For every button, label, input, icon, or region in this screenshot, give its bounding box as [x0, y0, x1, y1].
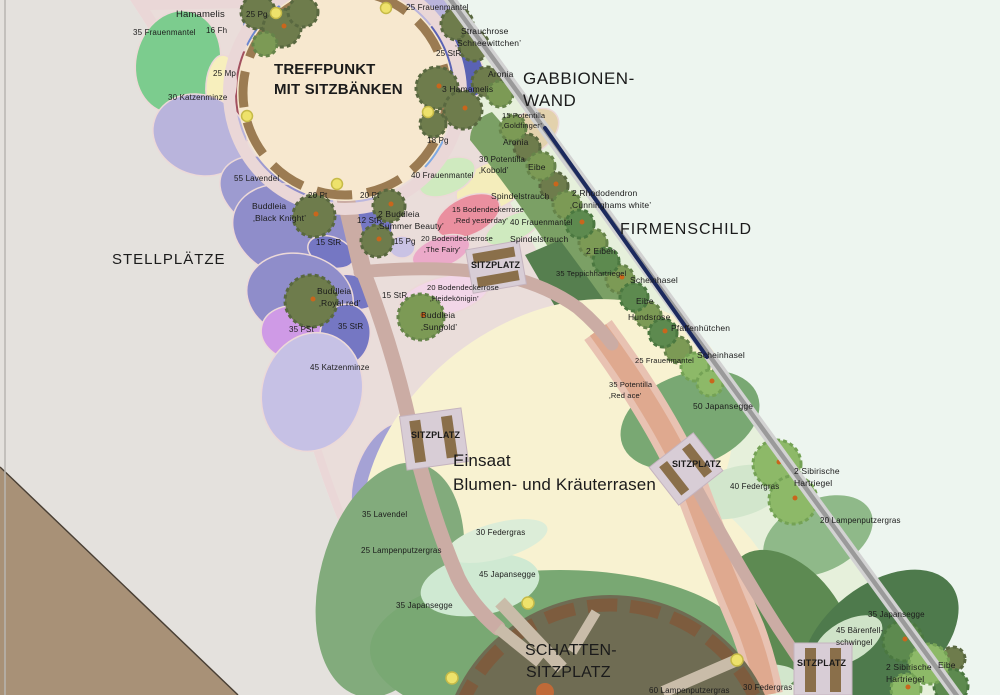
plant-label: 20 Pt [360, 192, 379, 200]
plant-label: 35 Frauenmantel [133, 29, 196, 37]
plant-label: Strauchrose [461, 27, 508, 36]
plant-label: 35 PSt [289, 326, 314, 334]
plant-label: 40 Federgras [730, 483, 779, 491]
plant-label: Eibe [636, 297, 654, 306]
plant-label: Hartriegel [794, 479, 832, 488]
plant-label: 35 Japansegge [396, 602, 453, 610]
plant-label: Eibe [528, 163, 546, 172]
plant-label: 2 Buddleia [378, 210, 420, 219]
plant-label: 35 Potentilla [609, 381, 652, 389]
plan-labels-layer: TREFFPUNKTMIT SITZBÄNKENSTELLPLÄTZEGABBI… [0, 0, 1000, 695]
plant-label: 15 StR [382, 292, 407, 300]
plant-label: ‚Sungold’ [421, 323, 457, 332]
plant-label: 25 Mp [213, 70, 236, 78]
plant-label: 40 Frauenmantel [411, 172, 474, 180]
plant-label: 2 Sibirische [886, 663, 932, 672]
plant-label: 50 Japansegge [693, 402, 753, 411]
plant-label: 30 Federgras [743, 684, 792, 692]
plant-label: 45 Japansegge [479, 571, 536, 579]
plant-label: 45 Katzenminze [310, 364, 369, 372]
plant-label: ‚Summer Beauty’ [377, 222, 444, 231]
plant-label: Hamamelis [176, 10, 225, 20]
plant-label: ‚Schneewittchen’ [455, 39, 521, 48]
plant-label: 20 Bodendeckerrose [421, 235, 493, 243]
area-title-treffpunkt-line2: MIT SITZBÄNKEN [274, 82, 403, 98]
plant-label: ‚The Fairy’ [424, 246, 461, 254]
sitzplatz-1-label: SITZPLATZ [471, 261, 520, 270]
plant-label: Pfaffenhütchen [671, 324, 730, 333]
plant-label: Buddleia [317, 287, 351, 296]
plant-label: 35 StR [338, 323, 363, 331]
plant-label: Buddleia [421, 311, 455, 320]
plant-label: Aronia [488, 70, 513, 79]
plant-label: 15 StR [316, 239, 341, 247]
sitzplatz-4-label: SITZPLATZ [797, 659, 846, 668]
plant-label: ‚Goldfinger’ [502, 122, 542, 130]
plant-label: 3 Hamamelis [442, 85, 493, 94]
plant-label: 30 Potentilla [479, 156, 525, 164]
plant-label: 20 Bodendeckerrose [427, 284, 499, 292]
plant-label: Scheinhasel [630, 276, 678, 285]
plant-label: Scheinhasel [697, 351, 745, 360]
plant-label: 35 Teppichhartriegel [556, 270, 626, 278]
plant-label: ‚Royal red’ [319, 299, 361, 308]
plant-label: 15 Bodendeckerrose [452, 206, 524, 214]
plant-label: 20 Pt [308, 192, 327, 200]
plant-label: 30 Federgras [476, 529, 525, 537]
plant-label: 20 Lampenputzergras [820, 517, 901, 525]
plant-label: Hartriegel [886, 675, 924, 684]
plant-label: schwingel [836, 639, 872, 647]
plant-label: ‚Black Knight’ [253, 214, 306, 223]
area-title-schattensitzplatz-line1: SCHATTEN- [525, 643, 617, 660]
area-title-schattensitzplatz-line2: SITZPLATZ [526, 665, 611, 682]
plant-label: 45 Bärenfell- [836, 627, 883, 635]
plant-label: ‚Cunninghams white’ [570, 201, 651, 210]
area-title-treffpunkt-line1: TREFFPUNKT [274, 62, 376, 78]
plant-label: Eibe [938, 661, 956, 670]
area-title-firmenschild: FIRMENSCHILD [620, 222, 752, 239]
plant-label: 2 Rhododendron [572, 189, 637, 198]
area-title-stellplaetze: STELLPLÄTZE [112, 252, 226, 268]
plant-label: 35 Japansegge [868, 611, 925, 619]
plant-label: 2 Sibirische [794, 467, 840, 476]
plant-label: 15 Potentilla [502, 112, 545, 120]
plant-label: 15 Pg [394, 238, 416, 246]
planting-plan-canvas: TREFFPUNKTMIT SITZBÄNKENSTELLPLÄTZEGABBI… [0, 0, 1000, 695]
area-title-einsaat-line1: Einsaat [453, 452, 511, 470]
plant-label: 2 Eiben [586, 247, 616, 256]
plant-label: 55 Lavendel [234, 175, 279, 183]
plant-label: Spindelstrauch [510, 235, 568, 244]
plant-label: 40 Frauenmantel [510, 219, 573, 227]
plant-label: 16 Fh [206, 27, 227, 35]
plant-label: 30 Katzenminze [168, 94, 227, 102]
plant-label: 25 Lampenputzergras [361, 547, 442, 555]
plant-label: 60 Lampenputzergras [649, 687, 730, 695]
plant-label: ‚Heidekönigin’ [430, 295, 479, 303]
plant-label: 25 Frauenmantel [406, 4, 469, 12]
area-title-gabbionenwand-line2: WAND [523, 92, 576, 110]
plant-label: Hundsrose [628, 313, 670, 322]
plant-label: ‚Red ace’ [609, 392, 642, 400]
area-title-einsaat-line2: Blumen- und Kräuterrasen [453, 476, 656, 494]
plant-label: Spindelstrauch [491, 192, 549, 201]
plant-label: 35 Lavendel [362, 511, 407, 519]
plant-label: 25 StR [436, 50, 461, 58]
plant-label: 25 Frauenmantel [635, 357, 694, 365]
plant-label: ‚Red yesterday’ [454, 217, 508, 225]
plant-label: Aronia [503, 138, 528, 147]
sitzplatz-3-label: SITZPLATZ [672, 460, 721, 469]
plant-label: ‚Kobold’ [479, 167, 509, 175]
plant-label: 25 Pg [246, 11, 268, 19]
area-title-gabbionenwand-line1: GABBIONEN- [523, 70, 635, 88]
sitzplatz-2-label: SITZPLATZ [411, 431, 460, 440]
plant-label: Buddleia [252, 202, 286, 211]
plant-label: 18 Pg [427, 137, 449, 145]
